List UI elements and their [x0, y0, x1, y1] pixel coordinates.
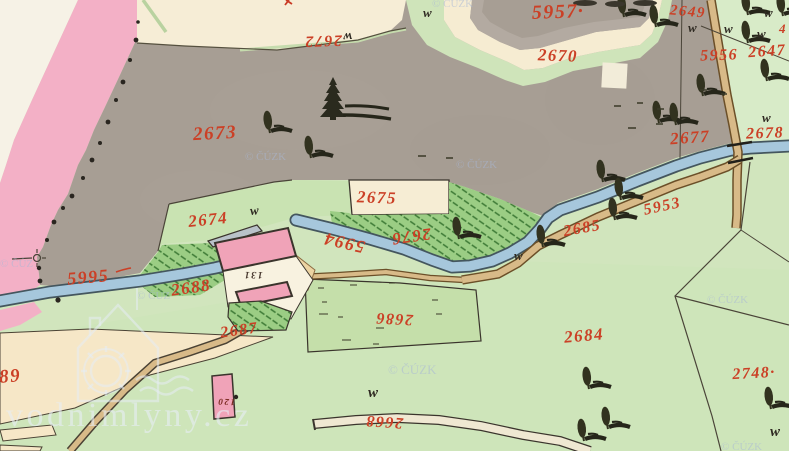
svg-text:5957·: 5957·: [531, 0, 584, 24]
svg-text:w: w: [724, 21, 733, 36]
svg-text:w: w: [688, 20, 697, 35]
svg-text:w: w: [762, 110, 771, 125]
svg-text:w: w: [757, 26, 766, 41]
svg-text:2675: 2675: [356, 187, 398, 207]
svg-text:2678: 2678: [745, 124, 785, 142]
svg-text:2672: 2672: [304, 31, 344, 49]
svg-text:2668: 2668: [365, 412, 405, 432]
svg-text:131: 131: [243, 269, 263, 280]
svg-text:vodnimlyny.cz: vodnimlyny.cz: [6, 397, 252, 434]
svg-text:5995: 5995: [66, 265, 110, 289]
svg-text:w: w: [764, 5, 773, 20]
svg-text:2748·: 2748·: [731, 364, 776, 383]
svg-text:© ČÚZK: © ČÚZK: [432, 0, 473, 10]
svg-text:2647: 2647: [747, 42, 787, 62]
svg-text:2649: 2649: [668, 2, 706, 21]
svg-text:w: w: [514, 248, 523, 263]
svg-text:2670: 2670: [537, 45, 579, 65]
svg-text:w: w: [249, 202, 259, 218]
svg-text:© ČÚZK: © ČÚZK: [245, 151, 286, 163]
svg-text:w: w: [770, 424, 781, 440]
svg-text:© ČÚZK: © ČÚZK: [707, 294, 748, 306]
svg-text:2673: 2673: [192, 122, 238, 145]
svg-text:2677: 2677: [668, 127, 710, 149]
svg-text:4: 4: [778, 21, 787, 36]
svg-text:2686: 2686: [375, 309, 415, 328]
svg-text:© ČÚZK: © ČÚZK: [388, 362, 437, 377]
svg-text:© ČÚZK: © ČÚZK: [721, 441, 762, 451]
svg-text:© ČÚZ: © ČÚZ: [0, 258, 33, 270]
svg-text:w: w: [423, 5, 432, 20]
svg-text:w: w: [343, 30, 353, 45]
svg-text:© ČÚZ: © ČÚZ: [137, 290, 170, 302]
svg-text:89: 89: [0, 365, 22, 388]
svg-text:© ČÚZK: © ČÚZK: [456, 159, 497, 171]
svg-text:2684: 2684: [562, 324, 604, 347]
svg-text:w: w: [368, 385, 379, 401]
svg-text:5956: 5956: [700, 46, 739, 64]
